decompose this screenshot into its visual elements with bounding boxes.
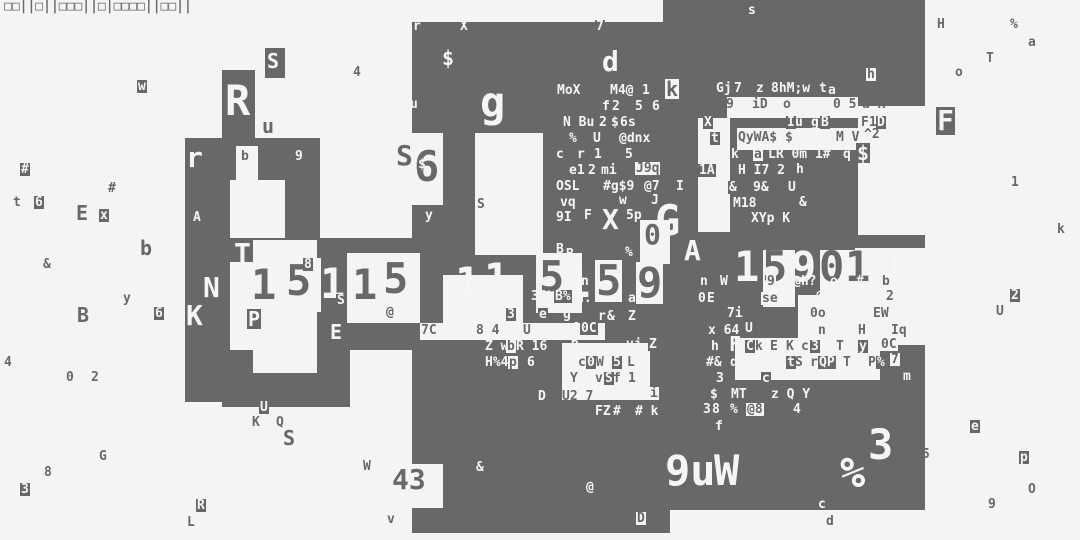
glyph: 0 bbox=[854, 290, 862, 303]
glyph: a: bbox=[628, 292, 644, 305]
glyph: c bbox=[801, 340, 809, 353]
glyph: M4@ bbox=[610, 84, 633, 97]
glyph: #g$9 bbox=[603, 180, 634, 193]
glyph: & bbox=[798, 196, 808, 209]
glyph: S bbox=[477, 198, 485, 211]
glyph: c bbox=[761, 372, 771, 385]
glyph: r bbox=[598, 310, 606, 323]
glyph: 8 4 bbox=[476, 324, 499, 337]
glyph: 3 bbox=[703, 403, 711, 416]
glyph: A bbox=[684, 237, 701, 265]
glyph: ^2 bbox=[864, 128, 880, 141]
glyph: 8 bbox=[711, 403, 721, 416]
glyph: QyWA$ $ bbox=[738, 131, 793, 144]
glyph: & bbox=[606, 310, 616, 323]
glyph: o bbox=[783, 98, 791, 111]
glyph: 1 bbox=[734, 246, 759, 288]
glyph: 2 bbox=[886, 290, 894, 303]
glyph: x bbox=[99, 209, 109, 222]
glyph: d bbox=[826, 515, 834, 528]
glyph: 0 bbox=[644, 221, 661, 249]
glyph: MoX bbox=[557, 84, 580, 97]
glyph: r bbox=[186, 144, 203, 172]
glyph: $ bbox=[611, 116, 619, 129]
glyph: q bbox=[843, 148, 851, 161]
glyph: S bbox=[267, 51, 279, 71]
glyph: □□||□||□□□||□|□□□□||□□|| bbox=[4, 0, 192, 13]
glyph: Z bbox=[648, 338, 658, 351]
glyph: 9 bbox=[726, 98, 734, 111]
glyph: S bbox=[336, 294, 346, 307]
glyph: g bbox=[480, 82, 505, 124]
glyph: 2 bbox=[598, 116, 608, 129]
glyph: 0o bbox=[810, 307, 826, 320]
glyph: u bbox=[410, 98, 418, 111]
glyph: F bbox=[936, 107, 955, 135]
glyph: XYp K bbox=[751, 212, 790, 225]
glyph: FZ bbox=[595, 405, 611, 418]
glyph: 3 bbox=[506, 308, 516, 321]
glyph: E bbox=[706, 292, 716, 305]
glyph: @ bbox=[586, 481, 594, 494]
glyph: # bbox=[108, 182, 116, 195]
glyph: 8 bbox=[303, 258, 313, 271]
glyph: X bbox=[703, 116, 713, 129]
glyph: k bbox=[755, 340, 763, 353]
glyph: 1 bbox=[641, 84, 651, 97]
glyph: @8 bbox=[746, 403, 764, 416]
glyph: 6 bbox=[34, 196, 44, 209]
glyph: L bbox=[187, 516, 195, 529]
glyph: N Bu bbox=[563, 116, 594, 129]
glyph: d bbox=[602, 48, 619, 76]
glyph: Y bbox=[570, 372, 578, 385]
glyph: z bbox=[755, 82, 765, 95]
glyph: t bbox=[818, 82, 828, 95]
glyph: h bbox=[711, 340, 719, 353]
glyph: # bbox=[856, 275, 864, 288]
glyph: B bbox=[820, 116, 830, 129]
glyph: G bbox=[99, 450, 107, 463]
glyph: 1 bbox=[424, 190, 432, 203]
glyph: $ bbox=[856, 143, 870, 163]
glyph: a K bbox=[862, 98, 885, 111]
glyph: I bbox=[676, 180, 684, 193]
glyph: b bbox=[506, 340, 516, 353]
glyph: 0 bbox=[698, 292, 706, 305]
glyph: % bbox=[568, 132, 578, 145]
glyph: 6 bbox=[154, 307, 164, 320]
glyph: 5p bbox=[626, 209, 642, 222]
glyph: & bbox=[475, 461, 485, 474]
glyph: K bbox=[252, 416, 260, 429]
glyph: D bbox=[538, 390, 546, 403]
glyph: @ bbox=[385, 306, 395, 319]
glyph: S bbox=[283, 428, 295, 448]
glyph: % bbox=[729, 403, 739, 416]
glyph: t bbox=[710, 132, 720, 145]
glyph: Z w bbox=[485, 340, 508, 353]
glyph: e1 bbox=[569, 164, 585, 177]
glyph: 5 bbox=[624, 148, 634, 161]
glyph: k bbox=[731, 148, 739, 161]
glyph: 7i bbox=[726, 307, 744, 320]
glyph: 4 bbox=[793, 403, 801, 416]
glyph: W bbox=[596, 356, 604, 369]
glyph: @w bbox=[816, 290, 832, 303]
glyph: % bbox=[1010, 18, 1018, 31]
glyph: 2 bbox=[587, 164, 597, 177]
glyph: s bbox=[628, 116, 636, 129]
glyph: a bbox=[753, 148, 763, 161]
glyph: W bbox=[720, 275, 728, 288]
glyph: U bbox=[259, 401, 269, 414]
glyph: 7 bbox=[595, 20, 605, 33]
glyph: iD bbox=[752, 98, 768, 111]
glyph: n bbox=[581, 275, 589, 288]
glyph: cNY bbox=[778, 370, 801, 383]
glyph: 9u bbox=[665, 450, 716, 492]
glyph: 2 bbox=[91, 371, 99, 384]
glyph: 0 bbox=[586, 356, 596, 369]
glyph: T bbox=[843, 356, 851, 369]
glyph: & bbox=[43, 258, 51, 271]
glyph: R 16 bbox=[516, 340, 547, 353]
glyph: U bbox=[593, 132, 601, 145]
glyph: % bbox=[876, 356, 886, 369]
glyph: t bbox=[13, 196, 21, 209]
glyph: 5 bbox=[383, 258, 408, 300]
glyph: 0 5 bbox=[833, 98, 856, 111]
glyph: mi bbox=[601, 164, 617, 177]
glyph: #& bbox=[706, 356, 722, 369]
glyph: 36% bbox=[531, 290, 554, 303]
glyph: vj bbox=[626, 338, 642, 351]
glyph: o) bbox=[830, 275, 846, 288]
glyph: T bbox=[234, 240, 251, 268]
glyph: y bbox=[858, 340, 868, 353]
glyph-canvas: □□||□||□□□||□|□□□□||□□||w#t6#Exb&yB64023… bbox=[0, 0, 1080, 540]
glyph: S bbox=[396, 142, 413, 170]
glyph: T bbox=[986, 52, 994, 65]
glyph: B bbox=[77, 305, 89, 325]
glyph: m bbox=[903, 370, 911, 383]
glyph: C bbox=[745, 340, 755, 353]
glyph: @dnx bbox=[619, 132, 650, 145]
glyph: 7 bbox=[733, 82, 743, 95]
glyph: U2 7 bbox=[562, 390, 593, 403]
glyph: @h? bbox=[793, 275, 816, 288]
glyph: x bbox=[716, 197, 724, 210]
glyph: 9 bbox=[766, 275, 776, 288]
glyph: b bbox=[722, 212, 730, 225]
glyph: $ bbox=[418, 158, 426, 171]
glyph: U bbox=[744, 322, 754, 335]
glyph: n bbox=[699, 275, 709, 288]
glyph: Gj bbox=[716, 82, 732, 95]
glyph: 9I bbox=[556, 211, 572, 224]
glyph: W bbox=[363, 460, 371, 473]
glyph: p bbox=[1019, 451, 1029, 464]
glyph: B bbox=[571, 340, 579, 353]
glyph: 8hM;w bbox=[770, 82, 811, 95]
glyph: r bbox=[413, 20, 421, 33]
glyph: 5 bbox=[634, 100, 644, 113]
glyph: e bbox=[538, 308, 548, 321]
glyph: P bbox=[247, 309, 261, 329]
glyph: OSL bbox=[556, 180, 579, 193]
glyph: g bbox=[563, 308, 571, 321]
glyph: LR 0m 1# bbox=[768, 148, 831, 161]
glyph: P bbox=[868, 356, 876, 369]
glyph: # k bbox=[635, 405, 658, 418]
glyph: o bbox=[955, 66, 963, 79]
glyph: 1 bbox=[484, 258, 509, 300]
glyph: 43 bbox=[392, 466, 426, 494]
glyph: 2 bbox=[612, 100, 620, 113]
glyph: E bbox=[330, 322, 342, 342]
glyph: L bbox=[627, 356, 635, 369]
glyph: N bbox=[203, 274, 220, 302]
glyph: 1 bbox=[251, 264, 276, 306]
glyph: M18 bbox=[733, 197, 756, 210]
glyph: % bbox=[840, 452, 865, 494]
glyph: R bbox=[225, 80, 250, 122]
glyph: 6 bbox=[527, 356, 535, 369]
glyph: # bbox=[612, 405, 622, 418]
glyph: H bbox=[937, 18, 945, 31]
glyph: O bbox=[1028, 483, 1036, 496]
glyph: 3 bbox=[810, 340, 820, 353]
glyph: h bbox=[795, 163, 805, 176]
glyph: c bbox=[578, 356, 586, 369]
glyph: F bbox=[729, 334, 741, 354]
glyph: @7 bbox=[643, 180, 661, 193]
glyph: H%4 bbox=[485, 356, 508, 369]
glyph: c bbox=[818, 498, 826, 511]
glyph: J9q bbox=[635, 162, 660, 175]
glyph: 1 bbox=[455, 262, 480, 304]
glyph: f bbox=[571, 322, 579, 335]
glyph: se bbox=[761, 292, 779, 305]
glyph: c bbox=[556, 148, 564, 161]
glyph: 9& bbox=[753, 181, 769, 194]
glyph: g bbox=[811, 116, 819, 129]
glyph: K bbox=[186, 302, 203, 330]
glyph: H bbox=[858, 324, 866, 337]
glyph: T bbox=[836, 340, 844, 353]
glyph: f bbox=[601, 100, 611, 113]
glyph: a bbox=[828, 84, 836, 97]
glyph: B% bbox=[554, 290, 572, 303]
glyph: E bbox=[76, 203, 88, 223]
glyph: X bbox=[460, 20, 468, 33]
glyph: s bbox=[748, 4, 756, 17]
glyph: v bbox=[387, 513, 395, 526]
glyph: 7C bbox=[421, 324, 437, 337]
glyph: H I7 2 bbox=[738, 164, 785, 177]
glyph: 5 bbox=[612, 356, 622, 369]
glyph: 5 bbox=[595, 260, 622, 302]
glyph: 1 bbox=[1011, 176, 1019, 189]
dark-block bbox=[412, 510, 670, 533]
glyph: r bbox=[576, 148, 586, 161]
glyph: 8 bbox=[44, 466, 52, 479]
glyph: A bbox=[193, 211, 201, 224]
glyph: $ bbox=[710, 388, 718, 401]
glyph: 1 bbox=[593, 148, 603, 161]
glyph: 5 bbox=[922, 448, 930, 461]
glyph: EW bbox=[873, 307, 889, 320]
glyph: e bbox=[970, 420, 980, 433]
glyph: Z bbox=[628, 310, 636, 323]
glyph: r bbox=[810, 356, 818, 369]
glyph: # bbox=[20, 163, 30, 176]
glyph: k bbox=[1057, 223, 1065, 236]
glyph: m bbox=[840, 116, 848, 129]
glyph: v bbox=[595, 372, 603, 385]
glyph: f bbox=[613, 372, 621, 385]
glyph: & bbox=[728, 181, 738, 194]
glyph: MT bbox=[731, 388, 747, 401]
glyph: 7 bbox=[890, 353, 900, 366]
glyph: d bbox=[730, 356, 738, 369]
glyph: 4 bbox=[353, 66, 361, 79]
glyph: R bbox=[196, 499, 206, 512]
dark-block bbox=[230, 395, 348, 407]
glyph: d. bbox=[576, 292, 592, 305]
glyph: S bbox=[795, 356, 803, 369]
glyph: uY bbox=[880, 164, 896, 177]
glyph: 3 bbox=[716, 372, 724, 385]
glyph: Iq bbox=[891, 324, 907, 337]
glyph: i bbox=[649, 387, 659, 400]
glyph: 0C bbox=[880, 338, 898, 351]
glyph: 3 bbox=[868, 424, 893, 466]
glyph: $ bbox=[442, 48, 454, 68]
glyph: 9 bbox=[295, 150, 303, 163]
glyph: vq bbox=[560, 196, 576, 209]
glyph: 1 bbox=[628, 372, 636, 385]
glyph: B bbox=[566, 248, 574, 261]
glyph: 2 bbox=[1010, 289, 1020, 302]
glyph: 1A bbox=[698, 164, 716, 177]
glyph: b bbox=[882, 275, 890, 288]
glyph: k bbox=[665, 79, 679, 99]
glyph: 6 bbox=[652, 100, 660, 113]
glyph: p bbox=[508, 356, 518, 369]
glyph: 3 bbox=[20, 483, 30, 496]
dark-block bbox=[285, 178, 320, 240]
glyph: j bbox=[748, 356, 756, 369]
glyph: W bbox=[714, 450, 739, 492]
glyph: u bbox=[261, 116, 275, 136]
glyph: z Q Y bbox=[771, 388, 810, 401]
glyph: % bbox=[625, 246, 633, 259]
glyph: E bbox=[770, 340, 778, 353]
glyph: 4 bbox=[4, 356, 12, 369]
glyph: U bbox=[788, 181, 796, 194]
glyph: K bbox=[786, 340, 794, 353]
glyph: h bbox=[866, 68, 876, 81]
glyph: b bbox=[140, 238, 152, 258]
glyph: 0C bbox=[580, 322, 598, 335]
glyph: D bbox=[636, 512, 646, 525]
glyph: 0 bbox=[66, 371, 74, 384]
dark-block bbox=[663, 0, 925, 22]
glyph: y bbox=[425, 209, 433, 222]
glyph: F bbox=[583, 209, 593, 222]
glyph: n bbox=[818, 324, 826, 337]
glyph: b bbox=[241, 150, 249, 163]
glyph: w bbox=[137, 80, 147, 93]
glyph: 9 bbox=[988, 498, 996, 511]
light-cutout bbox=[475, 133, 543, 255]
glyph: 1 bbox=[352, 264, 377, 306]
glyph: u bbox=[795, 116, 803, 129]
glyph: X bbox=[601, 206, 620, 234]
glyph: U bbox=[996, 305, 1004, 318]
glyph: a bbox=[1028, 36, 1036, 49]
glyph: y bbox=[123, 292, 131, 305]
glyph: f bbox=[714, 420, 724, 433]
glyph: QP bbox=[818, 356, 836, 369]
glyph: U bbox=[523, 324, 531, 337]
